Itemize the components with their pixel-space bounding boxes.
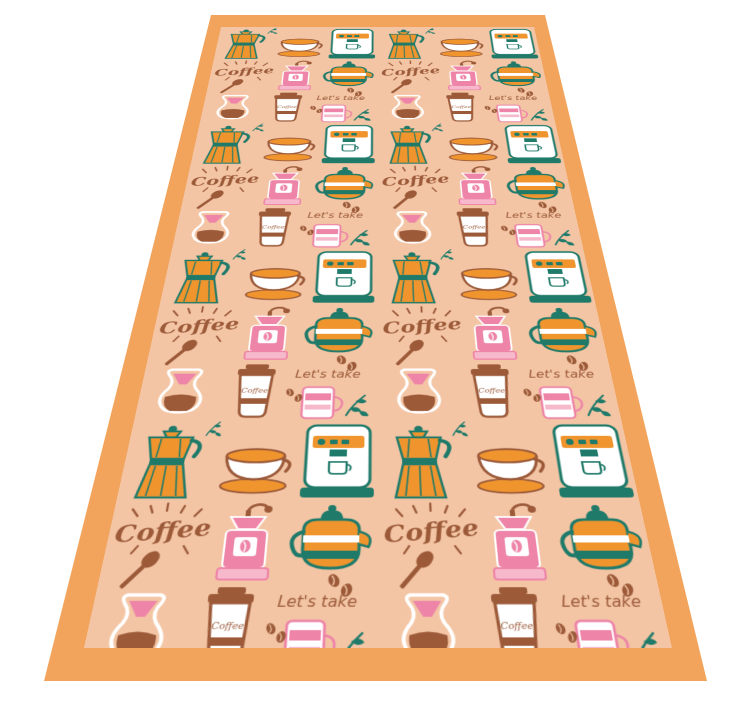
runner-pattern: Coffee bbox=[84, 27, 672, 648]
product-scene: Coffee bbox=[0, 0, 752, 703]
pattern-tiles bbox=[84, 27, 672, 648]
coffee-pattern-svg: Coffee bbox=[84, 27, 672, 648]
